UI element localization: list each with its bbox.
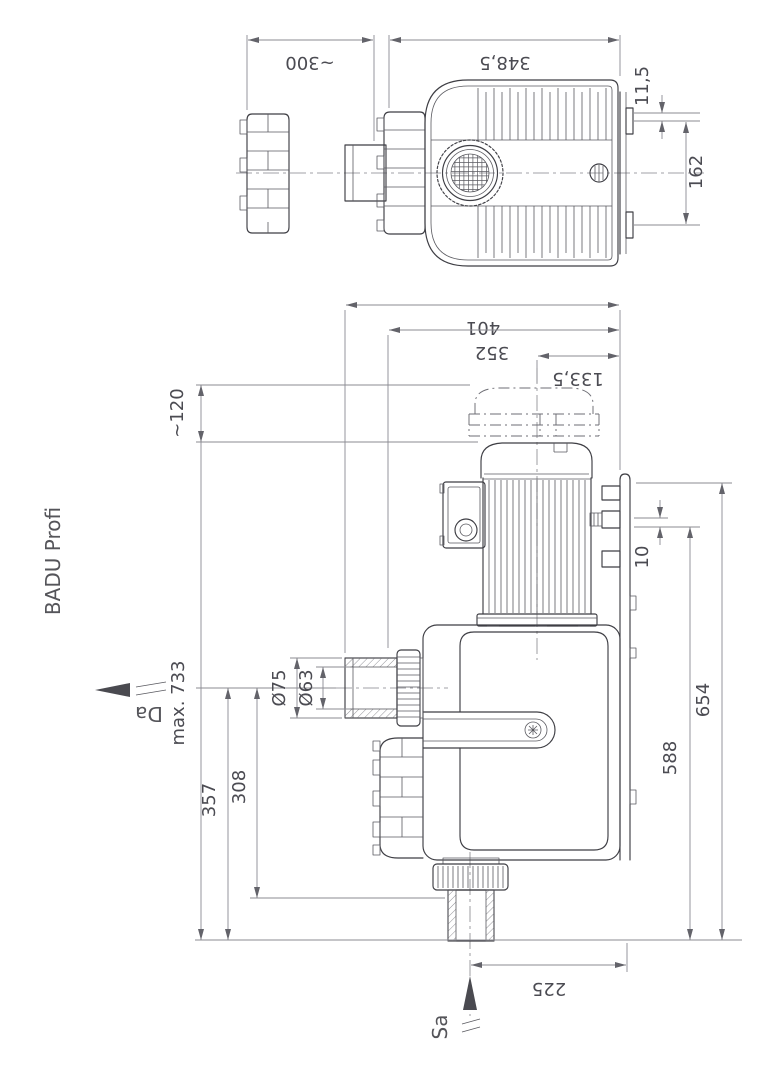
product-name-label: BADU Profi [41, 507, 65, 615]
mounting-plate-front [590, 474, 636, 860]
cable-gland [455, 519, 477, 541]
dim-port-axis-height: 357 [199, 783, 220, 817]
right-height-dimensions: 10 588 654 [632, 483, 732, 940]
outlet-flow-arrow: Da [95, 682, 166, 726]
front-height-dimensions: ~120 max. 733 357 308 [167, 385, 742, 940]
inlet-label: Sa [428, 1015, 452, 1040]
dim-union-nut-height: 308 [229, 770, 250, 804]
pump-dimension-drawing: ~300 348,5 11,5 162 [0, 0, 764, 1080]
drain-barb-fitting [590, 513, 602, 526]
strainer-lid-phantom [469, 388, 599, 436]
dim-overall-width: 401 [466, 317, 500, 338]
cooling-fins-bottom-row [478, 206, 606, 258]
suction-port [433, 858, 508, 941]
lower-union-cap [373, 738, 423, 858]
outlet-label: Da [135, 702, 163, 726]
inlet-arrow-icon [463, 976, 477, 1010]
outlet-arrow-icon [95, 683, 130, 697]
dim-port-outer-dia: Ø75 [269, 669, 290, 706]
dim-width-to-axis: 352 [475, 342, 509, 363]
strainer-lid [437, 140, 503, 206]
suction-union-nut [433, 864, 508, 890]
cooling-fins-top-row [478, 88, 606, 140]
dim-bracket-spacing: 162 [686, 155, 707, 189]
dim-axis-to-bracket: 133,5 [552, 368, 604, 389]
terminal-box [440, 482, 485, 548]
dim-bracket-height: 588 [660, 741, 681, 775]
badu-logo-icon [525, 722, 541, 738]
inlet-offset-dimension: 225 [471, 943, 627, 999]
front-view: 401 352 133,5 ~120 max. 733 357 308 Ø75 … [95, 305, 742, 1039]
dim-lid-clearance: ~120 [167, 388, 188, 437]
dim-flange-offset: 11,5 [632, 66, 653, 106]
strainer-mesh [451, 154, 489, 192]
technical-drawing-page: ~300 348,5 11,5 162 [0, 0, 764, 1080]
dim-total-length: 348,5 [479, 52, 531, 73]
dim-removal-clearance: ~300 [285, 52, 334, 73]
dim-plate-top-height: 654 [693, 683, 714, 717]
dim-bracket-gap: 10 [632, 546, 653, 569]
top-view: ~300 348,5 11,5 162 [236, 35, 707, 266]
detached-union-nut [240, 114, 289, 233]
dim-inlet-offset: 225 [532, 978, 566, 999]
top-view-dimensions: ~300 348,5 11,5 162 [247, 35, 707, 225]
pump-body-front [423, 625, 620, 860]
dim-max-height: max. 733 [168, 660, 189, 745]
motor-fins [489, 480, 585, 613]
dim-port-inner-dia: Ø63 [296, 669, 317, 706]
inlet-flow-arrow: Sa [428, 976, 480, 1039]
